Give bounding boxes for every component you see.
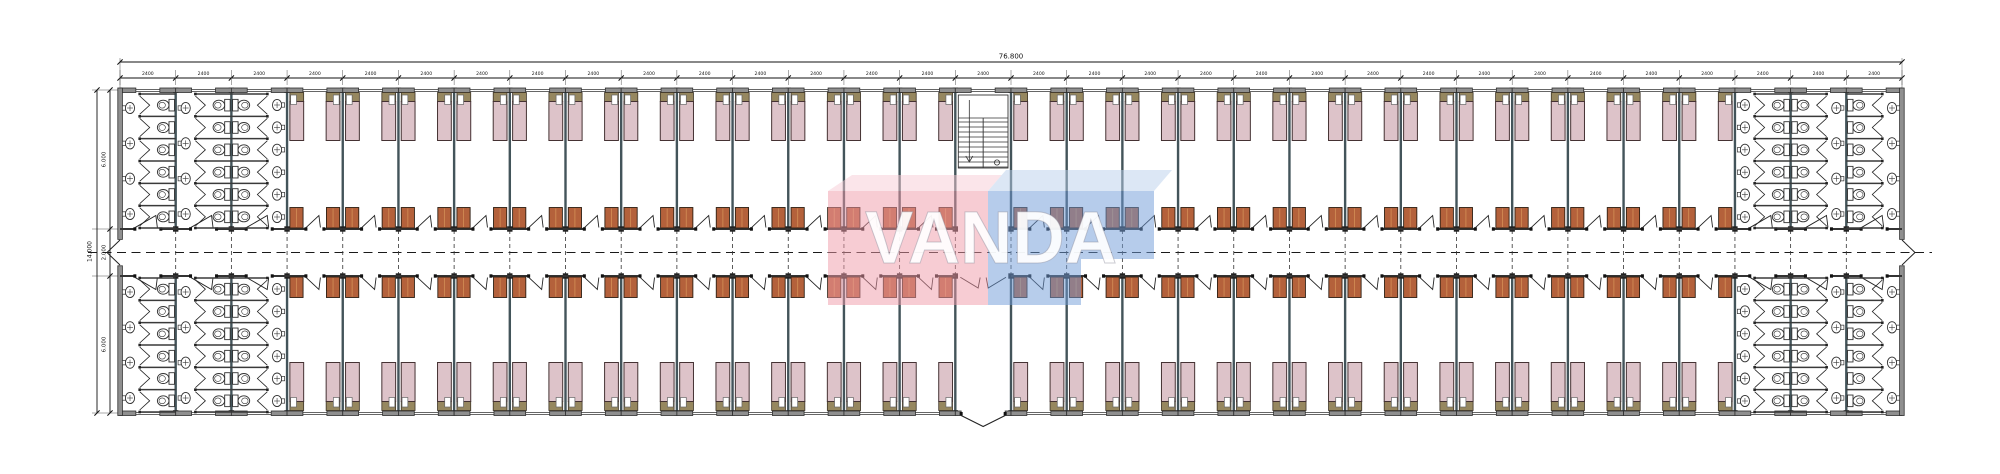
stall-door-swing <box>1817 347 1827 365</box>
bed <box>1329 102 1343 141</box>
exterior-wall <box>717 411 733 416</box>
room-door-swing <box>1750 216 1773 228</box>
bed <box>902 363 916 402</box>
room-door-swing <box>362 277 377 289</box>
stall-divider-cap <box>138 366 141 369</box>
bed <box>1496 102 1510 141</box>
door-jamb <box>527 274 530 277</box>
pillow <box>1015 398 1021 408</box>
pillow <box>333 398 339 408</box>
exterior-wall <box>1457 88 1473 93</box>
pillow <box>1015 95 1021 105</box>
door-jamb <box>245 274 248 277</box>
stall-door-swing <box>1872 163 1882 181</box>
entrance-door-swing <box>961 416 1005 427</box>
stall-divider-cap <box>194 137 197 140</box>
stall-door-swing <box>1817 369 1827 387</box>
toilet-tank <box>233 144 239 156</box>
bed <box>1161 102 1175 141</box>
exterior-wall <box>1791 88 1807 93</box>
bed <box>1459 363 1473 402</box>
stall-divider-cap <box>1881 366 1884 369</box>
toilet-tank <box>225 211 231 223</box>
dim-top-wing-label: 6.000 <box>102 151 108 167</box>
pillow <box>1460 95 1466 105</box>
toilet-tank <box>225 99 231 111</box>
exterior-wall <box>1830 411 1846 416</box>
room-door-swing <box>1750 277 1773 289</box>
dim-bay-label: 2400 <box>643 71 655 77</box>
stall-divider-cap <box>1753 277 1756 280</box>
exterior-wall <box>327 411 343 416</box>
stall-door-swing <box>1755 302 1765 320</box>
exterior-wall <box>494 411 510 416</box>
toilet-tank <box>169 328 175 340</box>
door-jamb <box>1860 274 1863 277</box>
door-jamb <box>712 227 715 230</box>
pillow <box>513 95 519 105</box>
stall-door-swing <box>195 392 205 410</box>
pillow <box>569 95 575 105</box>
door-jamb <box>694 227 697 230</box>
stall-divider-cap <box>266 93 269 96</box>
toilet-tank <box>1784 122 1790 134</box>
room-door-swing <box>1531 277 1546 289</box>
exterior-wall <box>1401 411 1417 416</box>
exterior-wall <box>772 411 788 416</box>
door-jamb <box>416 274 419 277</box>
dim-bay-label: 2400 <box>699 71 711 77</box>
dim-bay-label: 2400 <box>1256 71 1268 77</box>
exterior-wall <box>733 411 749 416</box>
room-door-swing <box>584 277 599 289</box>
exterior-wall <box>550 411 566 416</box>
stall-divider-cap <box>266 299 269 302</box>
exterior-wall <box>677 88 693 93</box>
toilet-tank <box>169 283 175 295</box>
toilet-tank <box>169 166 175 178</box>
door-jamb <box>545 274 548 277</box>
exterior-wall <box>1107 411 1123 416</box>
bed <box>1626 363 1640 402</box>
room-door-swing <box>1308 216 1323 228</box>
bed <box>660 363 674 402</box>
toilet-tank <box>1848 166 1854 178</box>
door-jamb <box>489 227 492 230</box>
pillow <box>1516 95 1522 105</box>
toilet-tank <box>1784 395 1790 407</box>
pillow <box>1113 95 1119 105</box>
exterior-wall <box>1735 88 1751 93</box>
bed <box>902 102 916 141</box>
exterior-wall <box>510 411 526 416</box>
door-jamb <box>489 274 492 277</box>
bed <box>1106 102 1120 141</box>
door-jamb <box>824 227 827 230</box>
bed <box>1161 363 1175 402</box>
door-jamb <box>1362 227 1365 230</box>
bed <box>346 102 360 141</box>
stall-door-swing <box>257 347 267 365</box>
stall-door-swing <box>1755 325 1765 343</box>
stall-divider-cap <box>138 227 141 230</box>
stall-divider-cap <box>1825 227 1828 230</box>
room-door-swing <box>1642 277 1657 289</box>
bed <box>1607 102 1621 141</box>
stall-door-swing <box>1817 185 1827 203</box>
dim-bay-label: 2400 <box>1701 71 1713 77</box>
door-jamb <box>1830 274 1833 277</box>
door-jamb <box>750 274 753 277</box>
stall-divider-cap <box>266 137 269 140</box>
toilet-tank <box>1792 395 1798 407</box>
door-jamb <box>1603 274 1606 277</box>
bed <box>1125 363 1139 402</box>
bed <box>1329 363 1343 402</box>
pillow <box>612 398 618 408</box>
bed <box>1292 102 1306 141</box>
exterior-wall <box>844 411 860 416</box>
pillow <box>1447 95 1453 105</box>
stall-door-swing <box>1817 163 1827 181</box>
bed <box>1515 102 1529 141</box>
stall-divider-cap <box>1881 93 1884 96</box>
stall-door-swing <box>140 325 150 343</box>
bed <box>549 102 563 141</box>
pillow <box>1070 398 1076 408</box>
door-jamb <box>159 274 162 277</box>
stair-start-marker <box>994 160 999 165</box>
toilet-tank <box>169 373 175 385</box>
bed <box>605 363 619 402</box>
door-jamb <box>1158 274 1161 277</box>
room-door-swing <box>696 216 711 228</box>
room-door-swing <box>417 216 432 228</box>
dim-bay-label: 2400 <box>1033 71 1045 77</box>
stall-door-swing <box>195 325 205 343</box>
toilet-tank <box>233 350 239 362</box>
door-jamb <box>960 412 963 415</box>
bed <box>290 102 304 141</box>
bed <box>791 363 805 402</box>
stall-door-swing <box>140 369 150 387</box>
pillow <box>1070 95 1076 105</box>
stall-divider-cap <box>1881 115 1884 118</box>
pillow <box>1558 398 1564 408</box>
room-door-swing <box>1253 216 1268 228</box>
door-jamb <box>1195 274 1198 277</box>
dim-overall-height-label: 14.000 <box>87 241 94 262</box>
stall-divider-cap <box>1753 137 1756 140</box>
pillow <box>736 95 742 105</box>
stall-door-swing <box>1817 96 1827 114</box>
dim-bay-label: 2400 <box>1757 71 1769 77</box>
bed <box>827 102 841 141</box>
dim-bay-label: 2400 <box>198 71 210 77</box>
stall-door-swing <box>1755 118 1765 136</box>
door-jamb <box>694 274 697 277</box>
toilet-tank <box>1848 99 1854 111</box>
stall-divider-cap <box>1825 204 1828 207</box>
stall-divider-cap <box>1825 411 1828 414</box>
door-jamb <box>583 274 586 277</box>
pillow <box>1614 398 1620 408</box>
exterior-wall <box>118 266 123 416</box>
stall-divider-cap <box>138 411 141 414</box>
pillow <box>779 95 785 105</box>
exterior-wall <box>343 411 359 416</box>
toilet-tank <box>233 99 239 111</box>
exterior-wall <box>1457 411 1473 416</box>
stall-divider-cap <box>194 411 197 414</box>
door-jamb <box>1641 227 1644 230</box>
exterior-wall <box>1345 411 1361 416</box>
door-jamb <box>601 227 604 230</box>
toilet-tank <box>225 350 231 362</box>
stall-door-swing <box>257 141 267 159</box>
exterior-wall <box>1385 88 1401 93</box>
exterior-wall <box>621 411 637 416</box>
room-door-swing <box>362 216 377 228</box>
toilet-tank <box>233 283 239 295</box>
stall-door-swing <box>140 185 150 203</box>
exterior-wall <box>1234 411 1250 416</box>
bed <box>493 363 507 402</box>
door-jamb <box>768 274 771 277</box>
pillow <box>1336 398 1342 408</box>
pillow <box>513 398 519 408</box>
pillow <box>680 95 686 105</box>
toilet-tank <box>1784 166 1790 178</box>
pillow <box>1280 398 1286 408</box>
bed <box>1682 102 1696 141</box>
pillow <box>903 95 909 105</box>
exterior-wall <box>1679 88 1695 93</box>
stall-divider-cap <box>138 344 141 347</box>
door-jamb <box>133 274 136 277</box>
pillow <box>291 398 297 408</box>
door-jamb <box>1603 227 1606 230</box>
bed <box>513 363 527 402</box>
stall-divider-cap <box>266 115 269 118</box>
door-jamb <box>1307 274 1310 277</box>
pillow <box>1726 95 1732 105</box>
exterior-wall <box>1719 88 1735 93</box>
bed <box>1348 363 1362 402</box>
exterior-wall <box>271 88 287 93</box>
door-jamb <box>768 227 771 230</box>
door-jamb <box>1715 227 1718 230</box>
pillow <box>1126 95 1132 105</box>
bed <box>1014 363 1028 402</box>
exterior-wall <box>939 411 955 416</box>
bed <box>401 102 415 141</box>
bed <box>438 102 452 141</box>
pillow <box>389 95 395 105</box>
exterior-wall <box>1608 88 1624 93</box>
exterior-wall <box>398 411 414 416</box>
exterior-wall <box>1496 88 1512 93</box>
room-door-swing <box>640 277 655 289</box>
dim-bay-label: 2400 <box>1534 71 1546 77</box>
stall-divider-cap <box>1825 321 1828 324</box>
stall-door-swing <box>1755 208 1765 226</box>
door-jamb <box>1158 227 1161 230</box>
stall-door-swing <box>195 185 205 203</box>
stall-door-swing <box>1817 325 1827 343</box>
stall-door-swing <box>140 118 150 136</box>
toilet-tank <box>233 189 239 201</box>
bed <box>1515 363 1529 402</box>
room-door-swing <box>306 277 321 289</box>
stall-divider-cap <box>1825 137 1828 140</box>
pillow <box>890 95 896 105</box>
dim-bay-label: 2400 <box>476 71 488 77</box>
exterior-wall <box>1496 411 1512 416</box>
pillow <box>736 398 742 408</box>
exterior-wall <box>1122 88 1138 93</box>
bed <box>1273 102 1287 141</box>
stall-door-swing <box>1872 302 1882 320</box>
door-jamb <box>434 274 437 277</box>
bed <box>568 363 582 402</box>
exterior-wall <box>383 88 399 93</box>
room-door-swing <box>306 216 321 228</box>
dim-bay-label: 2400 <box>1200 71 1212 77</box>
toilet-tank <box>225 328 231 340</box>
door-jamb <box>133 227 136 230</box>
stall-divider-cap <box>1753 411 1756 414</box>
dim-overall-width-label: 76.800 <box>999 53 1024 61</box>
stall-divider-cap <box>1825 388 1828 391</box>
bed <box>401 363 415 402</box>
exterior-wall <box>1011 411 1027 416</box>
exterior-wall <box>566 88 582 93</box>
room-door-swing <box>1698 277 1713 289</box>
room-door-swing <box>807 277 822 289</box>
dim-bottom-wing-label: 6.000 <box>102 336 108 352</box>
toilet-tank <box>1848 122 1854 134</box>
toilet-tank <box>1792 350 1798 362</box>
toilet-tank <box>225 283 231 295</box>
pillow <box>946 95 952 105</box>
toilet-tank <box>169 99 175 111</box>
stall-divider-cap <box>138 277 141 280</box>
pillow <box>1447 398 1453 408</box>
bed <box>1404 102 1418 141</box>
exterior-wall <box>955 88 971 93</box>
dim-bay-label: 2400 <box>1646 71 1658 77</box>
door-jamb <box>360 274 363 277</box>
exterior-wall <box>118 88 123 239</box>
exterior-wall <box>1178 411 1194 416</box>
door-jamb <box>304 227 307 230</box>
door-jamb <box>1697 274 1700 277</box>
door-jamb <box>1004 412 1007 415</box>
stall-divider-cap <box>138 182 141 185</box>
bed <box>1440 102 1454 141</box>
bed <box>346 363 360 402</box>
exterior-wall <box>1512 88 1528 93</box>
dim-bay-label: 2400 <box>922 71 934 77</box>
toilet-tank <box>169 122 175 134</box>
stall-divider-cap <box>138 204 141 207</box>
toilet-tank <box>1784 211 1790 223</box>
stall-divider-cap <box>1825 366 1828 369</box>
exterior-wall <box>661 88 677 93</box>
exterior-wall <box>939 88 955 93</box>
dim-bay-label: 2400 <box>755 71 767 77</box>
pillow <box>346 398 352 408</box>
toilet-tank <box>1792 122 1798 134</box>
pillow <box>1293 95 1299 105</box>
stall-door-swing <box>1872 325 1882 343</box>
stall-divider-cap <box>266 160 269 163</box>
pillow <box>792 398 798 408</box>
door-jamb <box>1774 274 1777 277</box>
stall-divider-cap <box>266 388 269 391</box>
bed <box>624 363 638 402</box>
bed <box>1125 102 1139 141</box>
toilet-tank <box>1784 306 1790 318</box>
dim-bay-label: 2400 <box>1423 71 1435 77</box>
room-door-swing <box>1364 216 1379 228</box>
stall-divider-cap <box>194 115 197 118</box>
stall-divider-cap <box>1825 344 1828 347</box>
bed <box>513 102 527 141</box>
toilet-tank <box>233 166 239 178</box>
pillow <box>1670 95 1676 105</box>
pillow <box>1224 398 1230 408</box>
door-jamb <box>639 227 642 230</box>
stall-door-swing <box>195 96 205 114</box>
exterior-wall <box>1679 411 1695 416</box>
stall-divider-cap <box>1881 388 1884 391</box>
exterior-wall <box>1512 411 1528 416</box>
bed <box>1384 363 1398 402</box>
exterior-wall <box>1345 88 1361 93</box>
exterior-wall <box>176 88 192 93</box>
exterior-wall <box>844 88 860 93</box>
bed <box>680 363 694 402</box>
exterior-wall <box>1719 411 1735 416</box>
bed <box>1237 363 1251 402</box>
pillow <box>792 95 798 105</box>
exterior-wall <box>287 411 303 416</box>
door-jamb <box>378 274 381 277</box>
exterior-wall <box>1401 88 1417 93</box>
exterior-wall <box>1274 88 1290 93</box>
room-door-swing <box>473 277 488 289</box>
exterior-wall <box>510 88 526 93</box>
door-jamb <box>824 274 827 277</box>
exterior-wall <box>1289 88 1305 93</box>
exterior-wall <box>1552 88 1568 93</box>
stall-door-swing <box>257 96 267 114</box>
door-jamb <box>271 274 274 277</box>
stall-door-swing <box>257 185 267 203</box>
toilet-tank <box>1792 283 1798 295</box>
pillow <box>1349 95 1355 105</box>
door-jamb <box>360 227 363 230</box>
stall-divider-cap <box>138 388 141 391</box>
bed <box>847 363 861 402</box>
stall-divider-cap <box>1825 182 1828 185</box>
stall-divider-cap <box>266 411 269 414</box>
exterior-wall <box>884 411 900 416</box>
bed <box>382 363 396 402</box>
stall-door-swing <box>1872 347 1882 365</box>
